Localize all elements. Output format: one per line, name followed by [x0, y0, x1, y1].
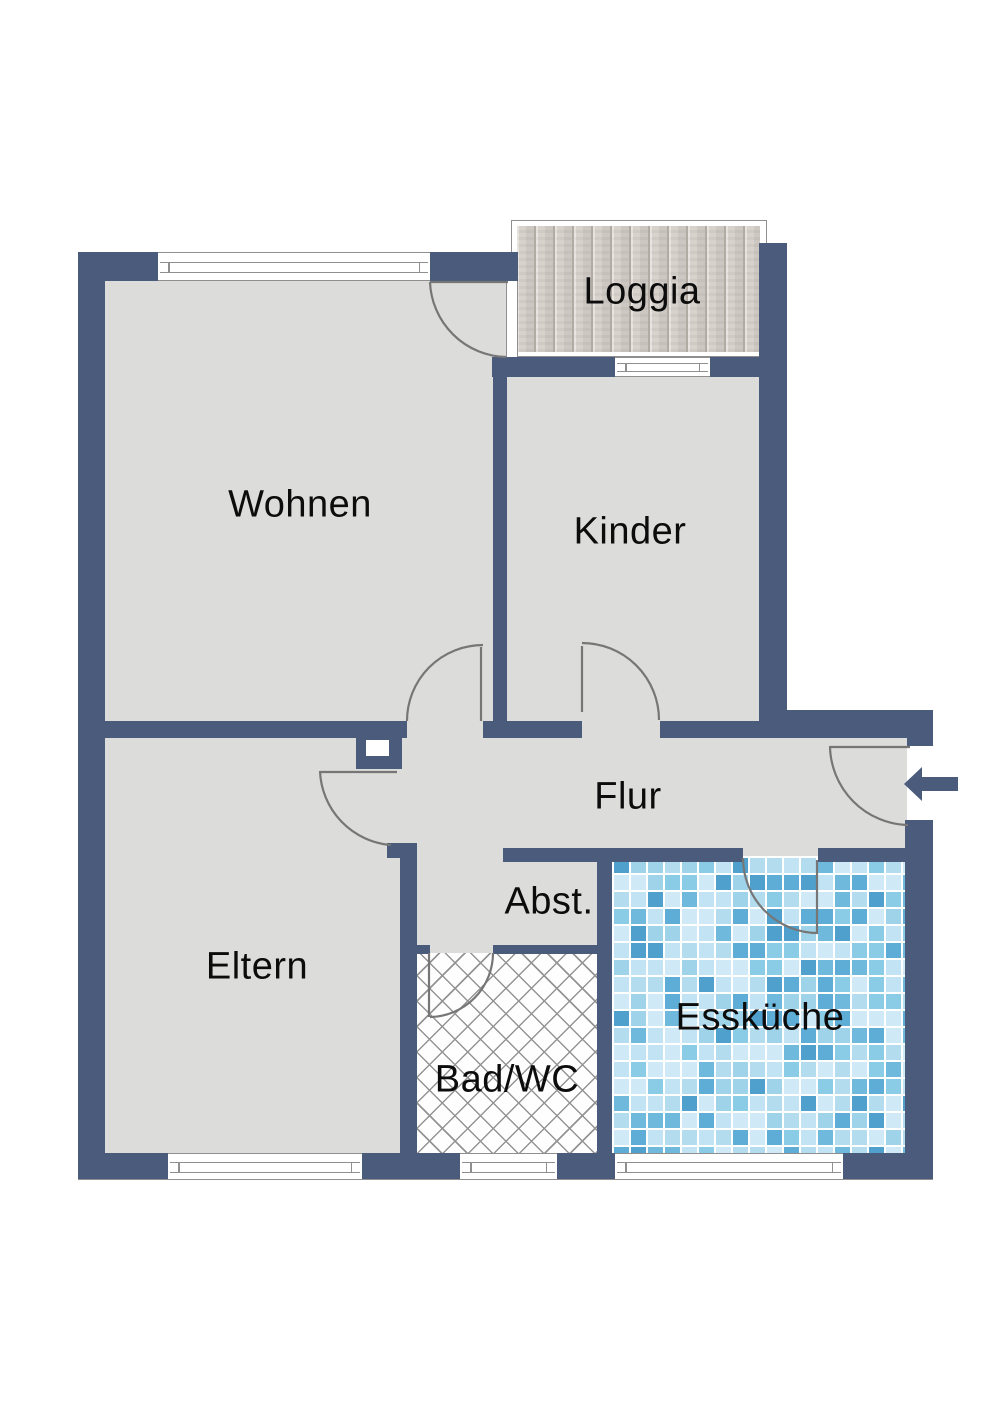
mosaic-tile [801, 909, 816, 924]
wall-kitchen-left [597, 848, 612, 1153]
room-label-eltern: Eltern [206, 946, 308, 989]
mosaic-tile [801, 1130, 816, 1145]
mosaic-tile [818, 1062, 833, 1077]
mosaic-tile [750, 943, 765, 958]
window-glass [617, 1162, 841, 1173]
mosaic-tile [750, 960, 765, 975]
room-label-wohnen: Wohnen [228, 484, 372, 527]
wall-bad-top-right [493, 945, 612, 954]
window-wohnen [158, 252, 430, 281]
mosaic-tile [801, 960, 816, 975]
mosaic-tile [852, 977, 867, 992]
mosaic-tile [852, 1079, 867, 1094]
room-label-flur: Flur [594, 776, 661, 819]
mosaic-tile [784, 1062, 799, 1077]
mosaic-tile [665, 943, 680, 958]
mosaic-tile [716, 909, 731, 924]
mosaic-tile [682, 960, 697, 975]
wall-eltern-bad-divider [400, 843, 417, 1153]
mosaic-tile [665, 977, 680, 992]
mosaic-tile [869, 1079, 884, 1094]
wall-entry-top-outer [787, 710, 933, 738]
mosaic-tile [869, 1130, 884, 1145]
mosaic-tile [733, 1062, 748, 1077]
mosaic-tile [716, 1062, 731, 1077]
mosaic-tile [614, 1028, 629, 1043]
mosaic-tile [818, 909, 833, 924]
mosaic-tile [852, 875, 867, 890]
mosaic-tile [716, 977, 731, 992]
mosaic-tile [801, 1062, 816, 1077]
mosaic-tile [784, 1130, 799, 1145]
mosaic-tile [648, 1079, 663, 1094]
mosaic-tile [767, 943, 782, 958]
mosaic-tile [665, 1113, 680, 1128]
mosaic-tile [818, 1045, 833, 1060]
window-esskueche [615, 1153, 843, 1180]
mosaic-tile [852, 926, 867, 941]
mosaic-tile [869, 977, 884, 992]
mosaic-tile [750, 875, 765, 890]
mosaic-tile [835, 1062, 850, 1077]
mosaic-tile [614, 960, 629, 975]
mosaic-tile [801, 943, 816, 958]
mosaic-tile [614, 926, 629, 941]
mosaic-tile [750, 892, 765, 907]
mosaic-tile [784, 926, 799, 941]
mosaic-tile [682, 1096, 697, 1111]
mosaic-tile [682, 875, 697, 890]
wall-wohnen-bottom [78, 721, 407, 738]
mosaic-tile [733, 1045, 748, 1060]
mosaic-tile [818, 977, 833, 992]
mosaic-tile [682, 943, 697, 958]
mosaic-tile [648, 1011, 663, 1026]
mosaic-tile [784, 875, 799, 890]
mosaic-tile [648, 960, 663, 975]
mosaic-tile [784, 1079, 799, 1094]
mosaic-tile [886, 1130, 901, 1145]
mosaic-tile [631, 875, 646, 890]
mosaic-tile [699, 977, 714, 992]
mosaic-tile [835, 875, 850, 890]
mosaic-tile [835, 926, 850, 941]
wall-right-lower-outer [905, 820, 933, 1180]
mosaic-tile [716, 926, 731, 941]
mosaic-tile [648, 875, 663, 890]
mosaic-tile [750, 1096, 765, 1111]
mosaic-tile [648, 1113, 663, 1128]
mosaic-tile [869, 960, 884, 975]
mosaic-tile [648, 1028, 663, 1043]
mosaic-tile [733, 1130, 748, 1145]
mosaic-tile [767, 1113, 782, 1128]
mosaic-tile [818, 943, 833, 958]
mosaic-tile [699, 1079, 714, 1094]
mosaic-tile [648, 892, 663, 907]
room-label-kinder: Kinder [574, 511, 687, 554]
mosaic-tile [631, 1028, 646, 1043]
mosaic-tile [631, 1045, 646, 1060]
mosaic-tile [699, 892, 714, 907]
mosaic-tile [648, 943, 663, 958]
mosaic-tile [716, 1079, 731, 1094]
mosaic-tile [869, 994, 884, 1009]
mosaic-tile [614, 909, 629, 924]
mosaic-tile [631, 926, 646, 941]
wall-flur-top-center [483, 721, 582, 738]
mosaic-tile [665, 926, 680, 941]
mosaic-tile [784, 943, 799, 958]
mosaic-tile [699, 909, 714, 924]
mosaic-tile [886, 909, 901, 924]
mosaic-tile [614, 1079, 629, 1094]
mosaic-tile [614, 1130, 629, 1145]
mosaic-tile [648, 994, 663, 1009]
mosaic-tile [682, 977, 697, 992]
mosaic-tile [852, 1062, 867, 1077]
mosaic-tile [733, 892, 748, 907]
mosaic-tile [665, 1096, 680, 1111]
mosaic-tile [767, 960, 782, 975]
mosaic-tile [665, 1130, 680, 1145]
mosaic-tile [665, 909, 680, 924]
mosaic-tile [886, 1062, 901, 1077]
mosaic-tile [682, 1130, 697, 1145]
mosaic-tile [631, 909, 646, 924]
mosaic-tile [631, 977, 646, 992]
mosaic-tile [767, 1096, 782, 1111]
mosaic-tile [852, 960, 867, 975]
mosaic-tile [886, 1045, 901, 1060]
mosaic-tile [835, 1079, 850, 1094]
mosaic-tile [733, 1113, 748, 1128]
mosaic-tile [835, 977, 850, 992]
mosaic-tile [614, 875, 629, 890]
mosaic-tile [886, 1079, 901, 1094]
window-bad [460, 1153, 557, 1180]
room-label-esskueche: Essküche [676, 997, 845, 1040]
facade-outline [78, 1179, 933, 1180]
mosaic-tile [665, 1079, 680, 1094]
mosaic-tile [818, 875, 833, 890]
mosaic-tile [750, 926, 765, 941]
mosaic-tile [614, 943, 629, 958]
mosaic-tile [818, 960, 833, 975]
mosaic-tile [631, 892, 646, 907]
mosaic-tile [682, 1079, 697, 1094]
mosaic-tile [767, 892, 782, 907]
mosaic-tile [801, 1079, 816, 1094]
mosaic-tile [835, 909, 850, 924]
mosaic-tile [733, 943, 748, 958]
mosaic-tile [648, 1062, 663, 1077]
mosaic-tile [801, 1113, 816, 1128]
mosaic-tile [699, 875, 714, 890]
mosaic-tile [886, 1028, 901, 1043]
bathroom-tile-floor [415, 953, 597, 1153]
mosaic-tile [716, 875, 731, 890]
mosaic-tile [767, 875, 782, 890]
mosaic-tile [784, 1045, 799, 1060]
mosaic-tile [750, 1113, 765, 1128]
wall-bad-top-left-stub [400, 945, 430, 954]
wall-left-outer [78, 252, 105, 1180]
mosaic-tile [852, 1011, 867, 1026]
mosaic-tile [852, 994, 867, 1009]
mosaic-tile [835, 960, 850, 975]
mosaic-tile [733, 926, 748, 941]
mosaic-tile [614, 892, 629, 907]
mosaic-tile [682, 1062, 697, 1077]
mosaic-tile [614, 1045, 629, 1060]
mosaic-tile [852, 943, 867, 958]
mosaic-tile [750, 858, 765, 873]
window-glass [160, 262, 428, 273]
mosaic-tile [869, 875, 884, 890]
mosaic-tile [750, 1079, 765, 1094]
window-glass [170, 1162, 360, 1173]
mosaic-tile [852, 1130, 867, 1145]
mosaic-tile [733, 977, 748, 992]
mosaic-tile [852, 892, 867, 907]
mosaic-tile [716, 960, 731, 975]
mosaic-tile [648, 1130, 663, 1145]
floor-plan: Wohnen Loggia Kinder Flur Abst. Eltern B… [0, 0, 1000, 1415]
mosaic-tile [648, 1096, 663, 1111]
mosaic-tile [767, 1062, 782, 1077]
mosaic-tile [665, 892, 680, 907]
mosaic-tile [801, 875, 816, 890]
mosaic-tile [631, 960, 646, 975]
mosaic-tile [818, 1130, 833, 1145]
wall-right-upper-outer [759, 243, 787, 738]
mosaic-tile [631, 994, 646, 1009]
mosaic-tile [631, 1011, 646, 1026]
mosaic-tile [801, 977, 816, 992]
mosaic-tile [699, 1113, 714, 1128]
wall-wohnen-kinder [493, 357, 507, 721]
mosaic-tile [835, 1130, 850, 1145]
mosaic-tile [869, 1113, 884, 1128]
mosaic-tile [665, 960, 680, 975]
entrance-arrow-icon [904, 767, 958, 801]
mosaic-tile [631, 1113, 646, 1128]
mosaic-tile [631, 943, 646, 958]
shaft-niche [366, 740, 389, 756]
mosaic-tile [614, 1113, 629, 1128]
mosaic-tile [852, 909, 867, 924]
mosaic-tile [886, 1113, 901, 1128]
room-label-abst: Abst. [504, 881, 593, 924]
wall-kitchen-top-right [818, 848, 907, 862]
mosaic-tile [886, 994, 901, 1009]
mosaic-tile [869, 943, 884, 958]
loggia-doorway [506, 281, 518, 357]
mosaic-tile [784, 892, 799, 907]
mosaic-tile [716, 1045, 731, 1060]
mosaic-tile [682, 892, 697, 907]
mosaic-tile [682, 1045, 697, 1060]
mosaic-tile [699, 1045, 714, 1060]
mosaic-tile [784, 858, 799, 873]
mosaic-tile [886, 943, 901, 958]
mosaic-tile [750, 977, 765, 992]
mosaic-tile [869, 1028, 884, 1043]
mosaic-tile [852, 1096, 867, 1111]
mosaic-tile [869, 1062, 884, 1077]
mosaic-tile [648, 926, 663, 941]
mosaic-tile [835, 1045, 850, 1060]
mosaic-tile [784, 960, 799, 975]
mosaic-tile [801, 1045, 816, 1060]
window-glass [617, 363, 708, 372]
mosaic-tile [886, 875, 901, 890]
mosaic-tile [801, 892, 816, 907]
mosaic-tile [835, 1096, 850, 1111]
mosaic-tile [818, 1113, 833, 1128]
mosaic-tile [852, 1028, 867, 1043]
mosaic-tile [716, 892, 731, 907]
mosaic-tile [784, 909, 799, 924]
mosaic-tile [716, 1096, 731, 1111]
mosaic-tile [835, 943, 850, 958]
mosaic-tile [699, 960, 714, 975]
mosaic-tile [631, 1130, 646, 1145]
mosaic-tile [886, 1011, 901, 1026]
mosaic-tile [886, 977, 901, 992]
mosaic-tile [818, 1096, 833, 1111]
mosaic-tile [699, 943, 714, 958]
mosaic-tile [869, 1011, 884, 1026]
mosaic-tile [750, 1130, 765, 1145]
mosaic-tile [852, 1045, 867, 1060]
mosaic-tile [869, 909, 884, 924]
wall-flur-bottom [503, 848, 743, 862]
mosaic-tile [886, 1096, 901, 1111]
mosaic-tile [818, 926, 833, 941]
room-label-loggia: Loggia [583, 271, 700, 314]
mosaic-tile [869, 892, 884, 907]
mosaic-tile [869, 926, 884, 941]
mosaic-tile [750, 1045, 765, 1060]
mosaic-tile [767, 977, 782, 992]
mosaic-tile [716, 943, 731, 958]
mosaic-tile [648, 909, 663, 924]
mosaic-tile [699, 1096, 714, 1111]
mosaic-tile [852, 1113, 867, 1128]
mosaic-tile [835, 892, 850, 907]
window-glass [462, 1162, 555, 1173]
mosaic-tile [733, 909, 748, 924]
mosaic-tile [750, 1062, 765, 1077]
mosaic-tile [750, 909, 765, 924]
window-kinder-loggia [615, 357, 710, 377]
window-eltern [168, 1153, 362, 1180]
mosaic-tile [733, 875, 748, 890]
mosaic-tile [614, 994, 629, 1009]
mosaic-tile [631, 1079, 646, 1094]
wall-kinder-bottom-right [660, 721, 787, 738]
mosaic-tile [886, 892, 901, 907]
mosaic-tile [801, 858, 816, 873]
mosaic-tile [665, 1062, 680, 1077]
mosaic-tile [784, 1096, 799, 1111]
mosaic-tile [682, 926, 697, 941]
mosaic-tile [818, 892, 833, 907]
mosaic-tile [665, 1045, 680, 1060]
mosaic-tile [886, 926, 901, 941]
mosaic-tile [767, 1079, 782, 1094]
mosaic-tile [682, 909, 697, 924]
mosaic-tile [818, 1079, 833, 1094]
mosaic-tile [699, 926, 714, 941]
mosaic-tile [648, 977, 663, 992]
mosaic-tile [869, 1096, 884, 1111]
wall-entry-top-lip [907, 738, 933, 746]
mosaic-tile [886, 960, 901, 975]
mosaic-tile [614, 1096, 629, 1111]
mosaic-tile [784, 977, 799, 992]
mosaic-tile [614, 1062, 629, 1077]
mosaic-tile [716, 1130, 731, 1145]
mosaic-tile [784, 1113, 799, 1128]
mosaic-tile [869, 1045, 884, 1060]
mosaic-tile [682, 1113, 697, 1128]
mosaic-tile [767, 1130, 782, 1145]
mosaic-tile [733, 1096, 748, 1111]
mosaic-tile [614, 1011, 629, 1026]
mosaic-tile [733, 960, 748, 975]
room-label-badwc: Bad/WC [435, 1059, 579, 1102]
mosaic-tile [767, 926, 782, 941]
mosaic-tile [801, 926, 816, 941]
mosaic-tile [631, 1062, 646, 1077]
mosaic-tile [767, 858, 782, 873]
mosaic-tile [665, 875, 680, 890]
mosaic-tile [767, 1045, 782, 1060]
mosaic-tile [699, 1062, 714, 1077]
mosaic-tile [614, 977, 629, 992]
mosaic-tile [699, 1130, 714, 1145]
mosaic-tile [835, 1113, 850, 1128]
mosaic-tile [648, 1045, 663, 1060]
mosaic-tile [733, 1079, 748, 1094]
mosaic-tile [716, 1113, 731, 1128]
mosaic-tile [801, 1096, 816, 1111]
mosaic-tile [631, 1096, 646, 1111]
mosaic-tile [767, 909, 782, 924]
